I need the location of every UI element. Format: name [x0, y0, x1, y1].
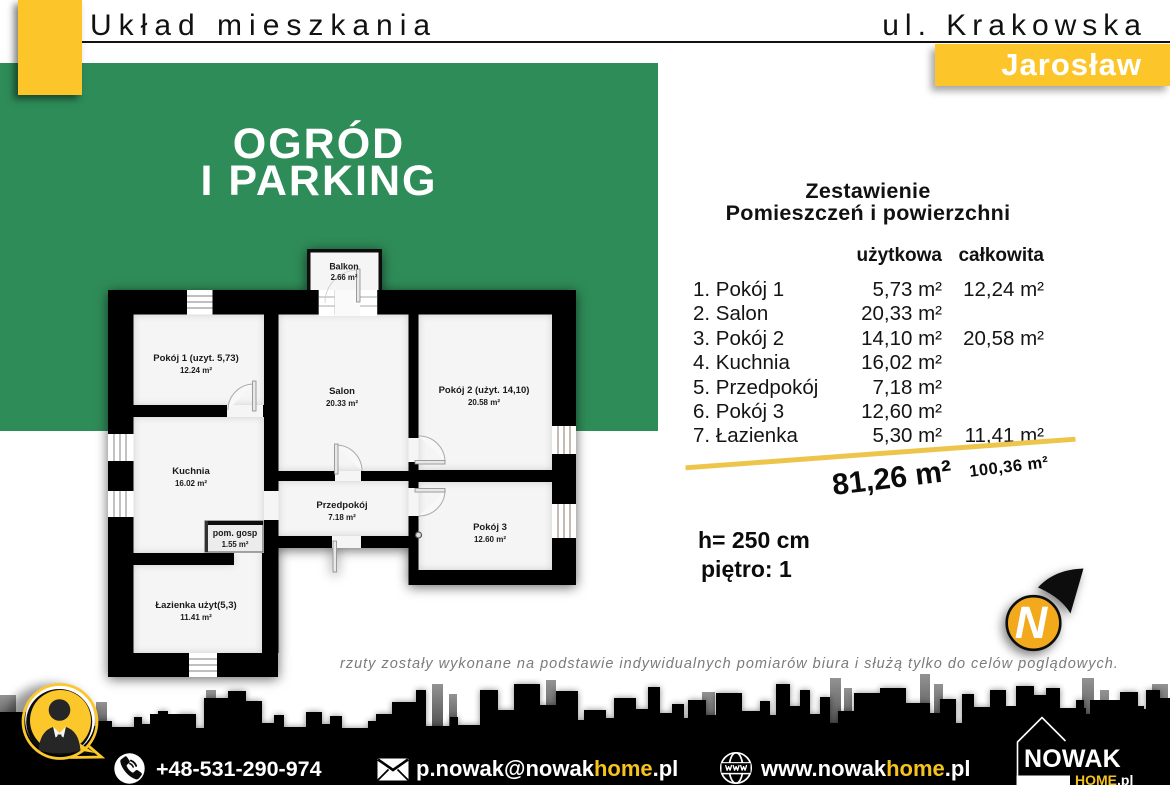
- svg-text:12.24 m²: 12.24 m²: [180, 366, 212, 375]
- svg-text:20.33 m²: 20.33 m²: [326, 399, 358, 408]
- svg-text:12.60 m²: 12.60 m²: [474, 535, 506, 544]
- svg-text:Kuchnia: Kuchnia: [172, 466, 210, 477]
- svg-text:7.18 m²: 7.18 m²: [328, 513, 356, 522]
- svg-text:Salon: Salon: [329, 386, 355, 397]
- svg-text:2.66 m²: 2.66 m²: [331, 273, 358, 282]
- svg-text:Pokój 2 (użyt. 14,10): Pokój 2 (użyt. 14,10): [439, 385, 530, 396]
- svg-text:Przedpokój: Przedpokój: [316, 500, 367, 511]
- svg-text:20.58 m²: 20.58 m²: [468, 398, 500, 407]
- svg-text:11.41 m²: 11.41 m²: [180, 613, 212, 622]
- svg-text:pom. gosp: pom. gosp: [213, 528, 258, 538]
- svg-text:N: N: [1015, 597, 1049, 648]
- svg-text:1.55 m²: 1.55 m²: [222, 540, 249, 549]
- svg-text:Balkon: Balkon: [329, 262, 358, 272]
- svg-text:16.02 m²: 16.02 m²: [175, 479, 207, 488]
- svg-text:Łazienka użyt(5,3): Łazienka użyt(5,3): [155, 600, 236, 611]
- svg-text:Pokój 1 (uzyt. 5,73): Pokój 1 (uzyt. 5,73): [153, 353, 239, 364]
- svg-text:Pokój 3: Pokój 3: [473, 522, 507, 533]
